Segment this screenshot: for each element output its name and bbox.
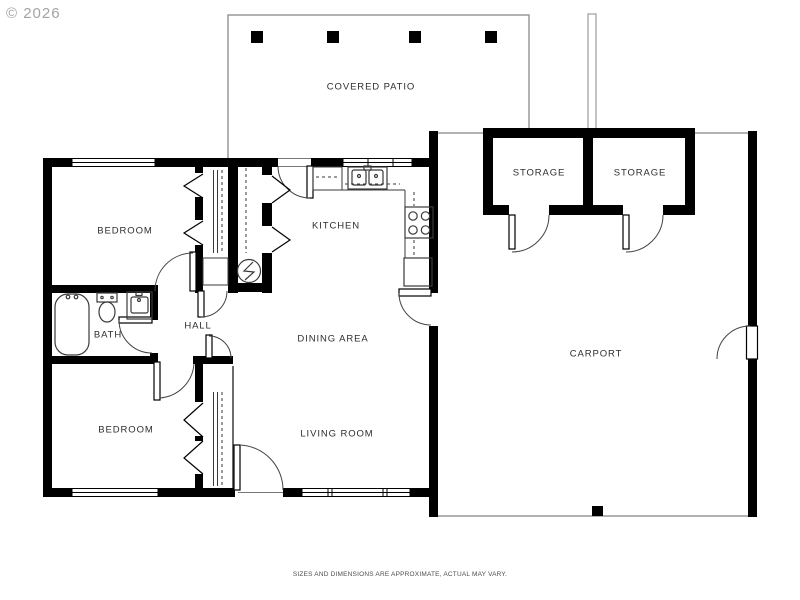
room-label-bath: BATH: [94, 330, 122, 341]
stove-icon: [405, 207, 433, 238]
floor-plan-page: © 2026 COVERED PATIO STORAGE STORAGE KIT…: [0, 0, 800, 600]
window-icon: [72, 158, 412, 497]
water-heater-icon: [238, 260, 261, 283]
room-label-carport: CARPORT: [570, 349, 623, 360]
door-swing-icon: [119, 166, 431, 490]
carport-door-swing: [717, 326, 750, 359]
door-thresholds: [238, 159, 311, 493]
toilet-icon: [97, 293, 117, 322]
room-label-covered-patio: COVERED PATIO: [327, 82, 415, 93]
room-label-dining-area: DINING AREA: [297, 334, 368, 345]
kitchen-sink-icon: [348, 166, 387, 189]
room-label-living-room: LIVING ROOM: [300, 429, 373, 440]
kitchen-counter: [313, 167, 414, 258]
copyright-watermark: © 2026: [6, 5, 61, 22]
sink-vanity-icon: [127, 292, 152, 319]
room-label-hall: HALL: [184, 321, 211, 332]
bathtub-icon: [55, 294, 89, 355]
flue-stub: [588, 14, 596, 131]
carport-door-leaf: [747, 326, 758, 359]
room-label-storage-left: STORAGE: [513, 168, 566, 179]
room-label-bedroom-top: BEDROOM: [97, 226, 152, 237]
size-disclaimer: SIZES AND DIMENSIONS ARE APPROXIMATE, AC…: [293, 571, 507, 578]
room-label-bedroom-bottom: BEDROOM: [98, 425, 153, 436]
refrigerator-icon: [404, 258, 432, 286]
room-label-storage-right: STORAGE: [614, 168, 667, 179]
storage-doors: [509, 215, 663, 252]
patio-post-icon: [251, 31, 497, 43]
room-label-kitchen: KITCHEN: [312, 221, 360, 232]
